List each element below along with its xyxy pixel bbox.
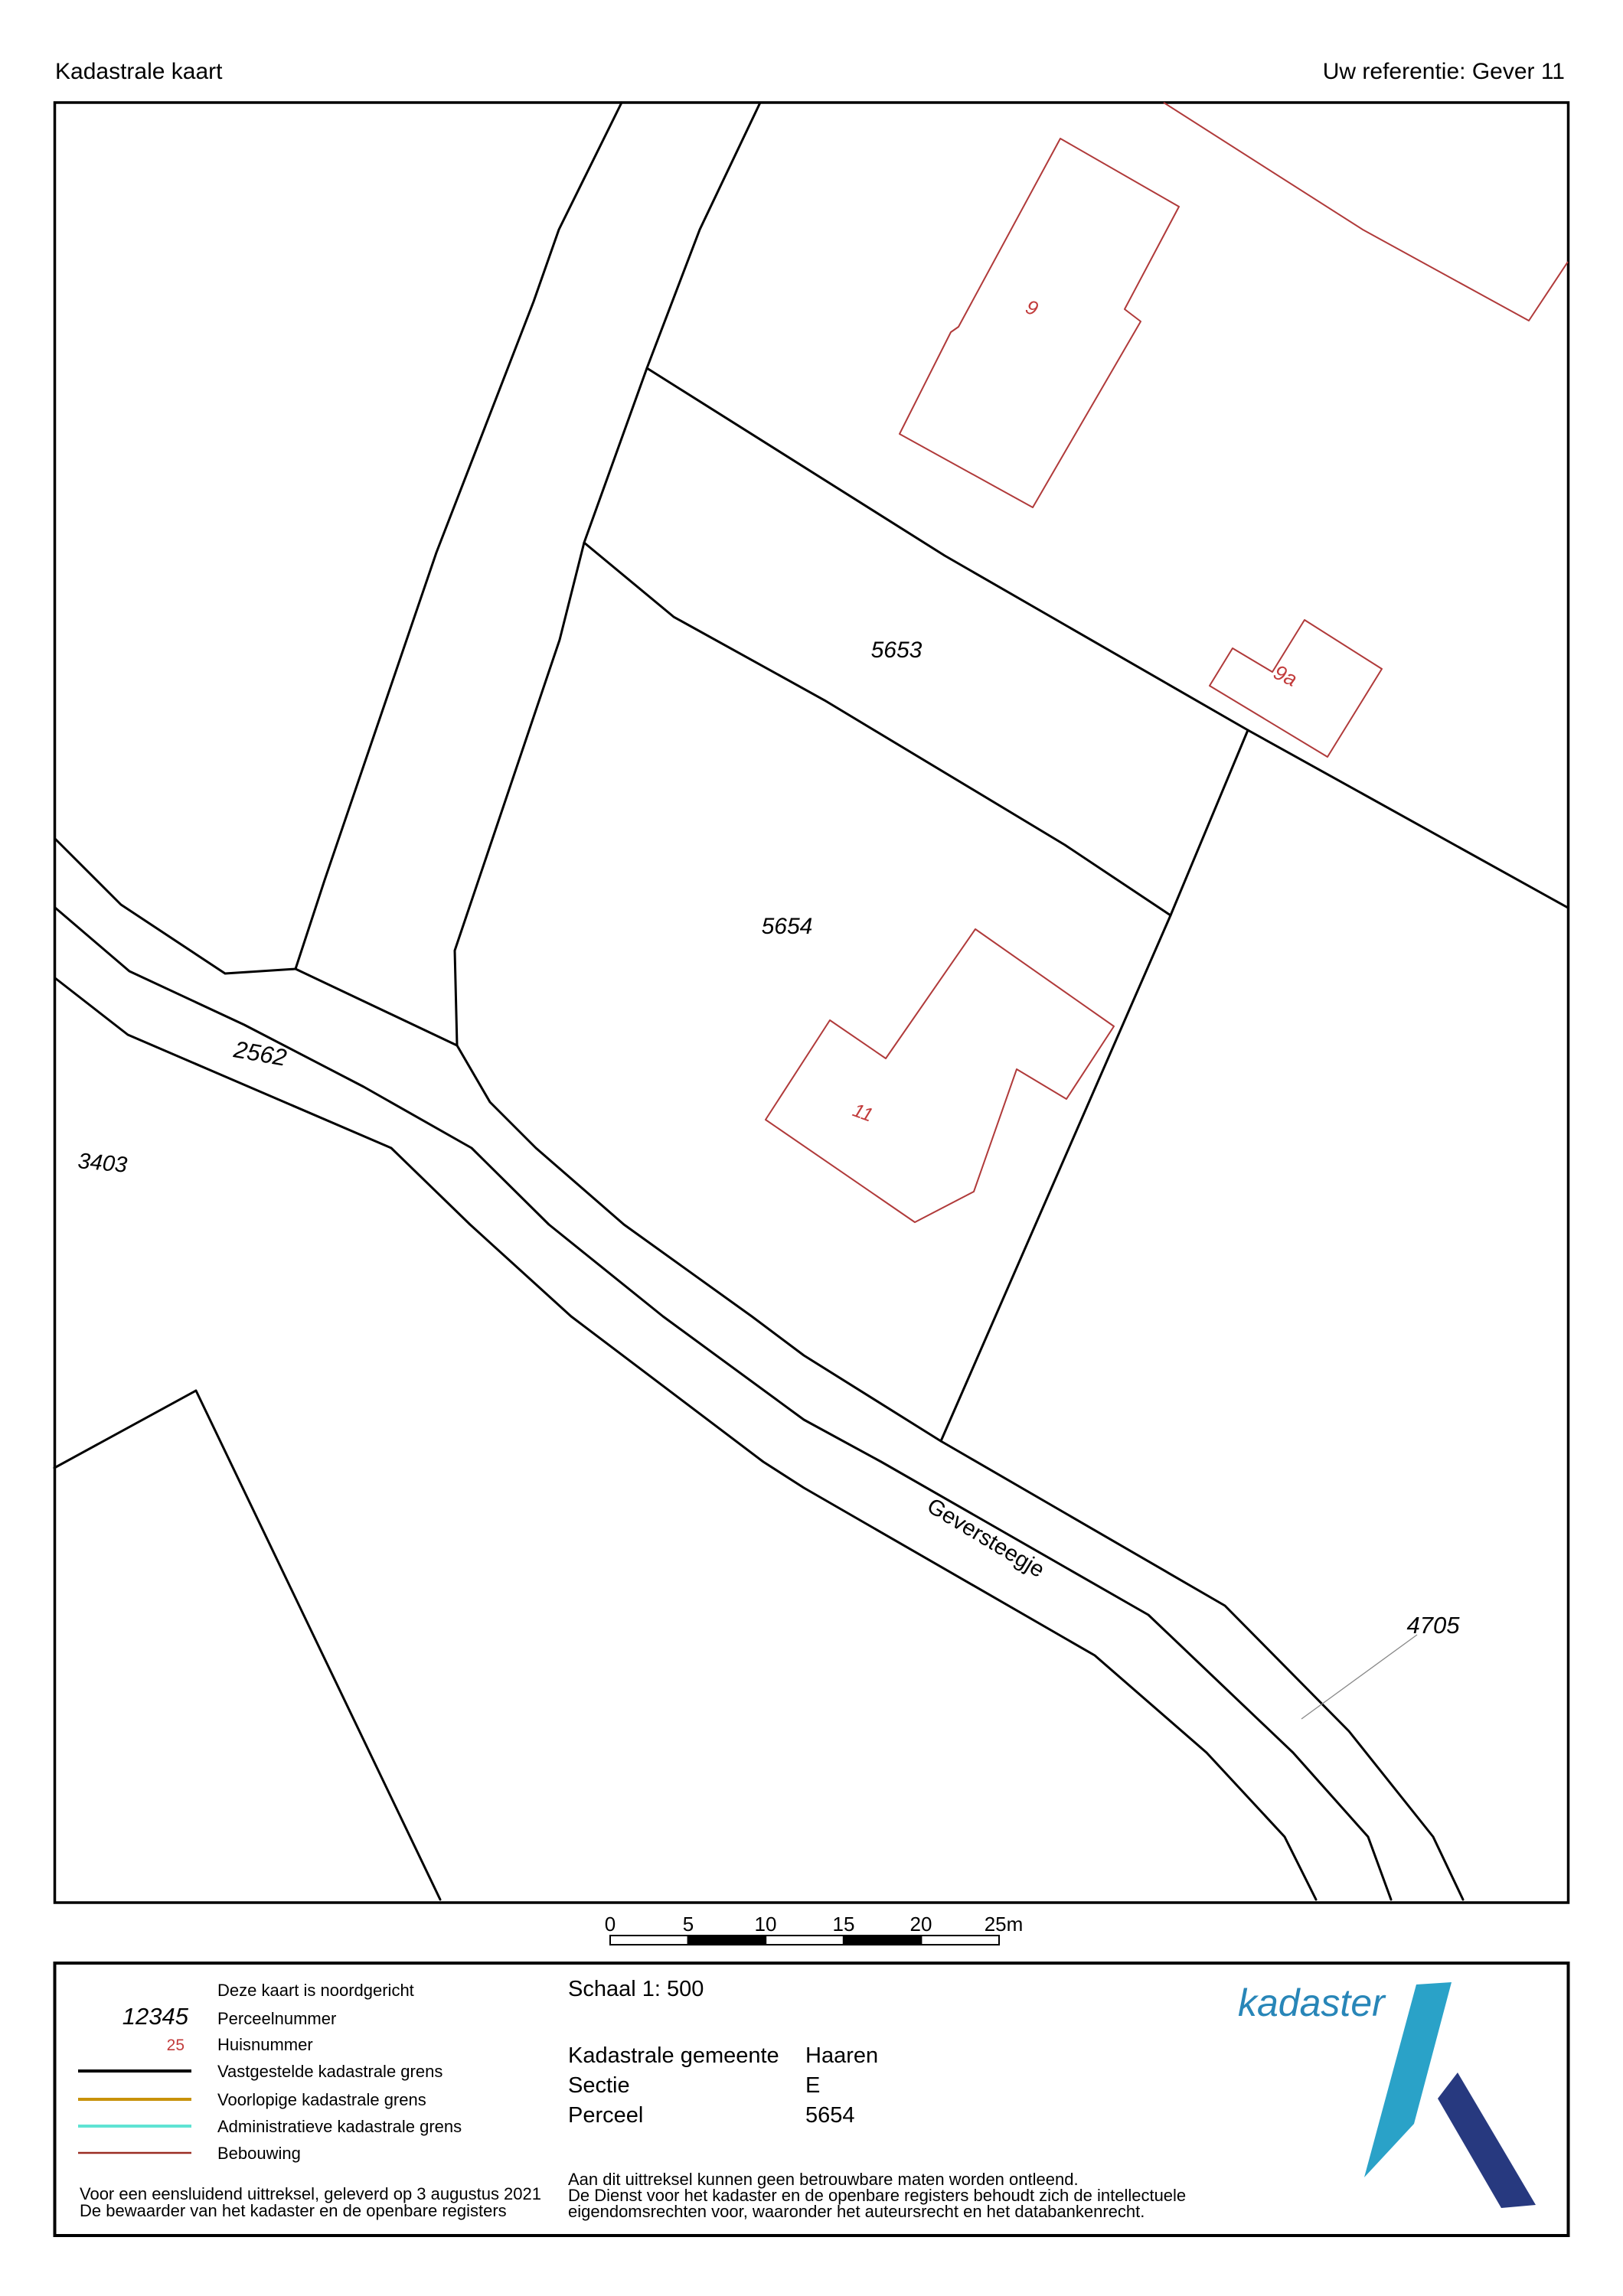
- svg-text:Vastgestelde kadastrale grens: Vastgestelde kadastrale grens: [217, 2062, 442, 2081]
- svg-text:15: 15: [833, 1913, 855, 1936]
- svg-text:Perceel: Perceel: [568, 2103, 643, 2128]
- svg-text:4705: 4705: [1407, 1612, 1461, 1639]
- svg-text:Kadastrale kaart: Kadastrale kaart: [55, 59, 223, 84]
- svg-text:De bewaarder van het kadaster: De bewaarder van het kadaster en de open…: [80, 2201, 507, 2220]
- svg-text:Kadastrale gemeente: Kadastrale gemeente: [568, 2043, 779, 2068]
- svg-text:eigendomsrechten voor, waarond: eigendomsrechten voor, waaronder het aut…: [568, 2202, 1145, 2221]
- svg-text:Voorlopige kadastrale grens: Voorlopige kadastrale grens: [217, 2090, 426, 2109]
- svg-text:Uw referentie: Gever 11: Uw referentie: Gever 11: [1323, 59, 1565, 84]
- svg-text:Deze kaart is noordgericht: Deze kaart is noordgericht: [217, 1981, 414, 2000]
- svg-text:Haaren: Haaren: [805, 2043, 878, 2068]
- svg-text:5653: 5653: [871, 638, 923, 663]
- svg-text:0: 0: [605, 1913, 616, 1936]
- svg-text:Perceelnummer: Perceelnummer: [217, 2009, 336, 2028]
- svg-text:5654: 5654: [805, 2103, 855, 2128]
- svg-text:Sectie: Sectie: [568, 2073, 630, 2098]
- svg-text:5654: 5654: [762, 914, 813, 939]
- svg-text:3403: 3403: [77, 1149, 128, 1178]
- svg-text:12345: 12345: [122, 2003, 189, 2030]
- svg-text:E: E: [805, 2073, 820, 2098]
- svg-text:Schaal 1: 500: Schaal 1: 500: [568, 1977, 704, 2001]
- svg-text:5: 5: [683, 1913, 694, 1936]
- svg-text:25: 25: [167, 2037, 185, 2054]
- svg-text:kadaster: kadaster: [1238, 1981, 1386, 2024]
- svg-text:20: 20: [910, 1913, 932, 1936]
- svg-text:Bebouwing: Bebouwing: [217, 2144, 301, 2163]
- svg-text:25m: 25m: [985, 1913, 1024, 1936]
- svg-text:10: 10: [755, 1913, 777, 1936]
- svg-text:Huisnummer: Huisnummer: [217, 2035, 313, 2054]
- svg-text:Administratieve kadastrale gre: Administratieve kadastrale grens: [217, 2117, 462, 2136]
